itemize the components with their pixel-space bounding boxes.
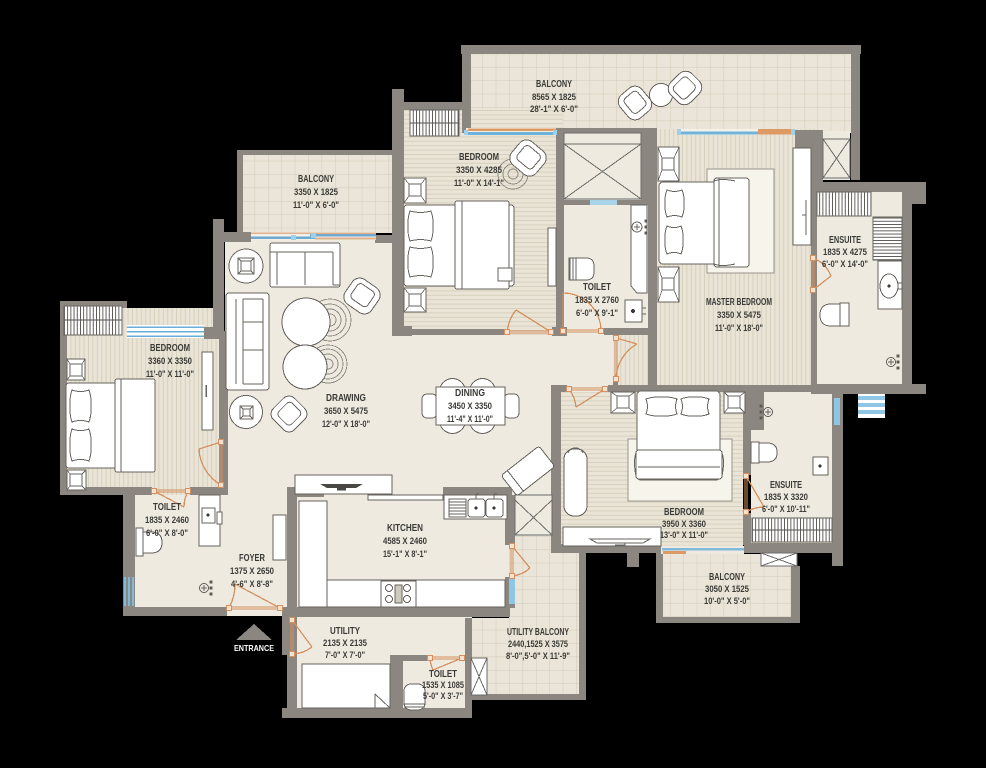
svg-text:ENSUITE: ENSUITE: [829, 235, 861, 246]
svg-text:3450 X 3350: 3450 X 3350: [448, 401, 492, 411]
svg-text:12'-0" X 18'-0": 12'-0" X 18'-0": [322, 419, 370, 429]
svg-text:6'-0" X 10'-11": 6'-0" X 10'-11": [762, 504, 810, 514]
svg-text:8565 X 1825: 8565 X 1825: [532, 92, 576, 102]
svg-text:1835 X 2460: 1835 X 2460: [145, 515, 189, 525]
svg-text:1375 X 2650: 1375 X 2650: [230, 566, 274, 576]
svg-text:11'-4" X 11'-0": 11'-4" X 11'-0": [447, 414, 493, 424]
svg-text:BEDROOM: BEDROOM: [664, 507, 704, 518]
svg-text:3650 X 5475: 3650 X 5475: [324, 406, 368, 416]
svg-text:TOILET: TOILET: [429, 669, 457, 680]
svg-text:2135 X 2135: 2135 X 2135: [323, 638, 367, 648]
svg-text:3360 X 3350: 3360 X 3350: [148, 356, 192, 366]
svg-text:TOILET: TOILET: [153, 502, 181, 513]
svg-text:UTILITY: UTILITY: [330, 626, 360, 637]
svg-text:MASTER BEDROOM: MASTER BEDROOM: [706, 297, 772, 308]
svg-text:BALCONY: BALCONY: [709, 572, 745, 583]
svg-text:13'-0" X 11'-0": 13'-0" X 11'-0": [660, 530, 708, 540]
svg-text:1835 X 2760: 1835 X 2760: [575, 295, 619, 305]
svg-text:TOILET: TOILET: [583, 282, 611, 293]
svg-text:11'-0" X 6'-0": 11'-0" X 6'-0": [293, 200, 339, 210]
svg-text:FOYER: FOYER: [239, 553, 266, 564]
svg-text:11'-0" X 14'-1": 11'-0" X 14'-1": [454, 178, 504, 188]
svg-text:BALCONY: BALCONY: [298, 174, 334, 185]
svg-text:6'-0" X 9'-1": 6'-0" X 9'-1": [576, 308, 618, 318]
svg-text:1835 X 3320: 1835 X 3320: [764, 492, 808, 502]
svg-text:15'-1" X 8'-1": 15'-1" X 8'-1": [383, 549, 427, 559]
svg-text:10'-0" X 5'-0": 10'-0" X 5'-0": [704, 596, 750, 606]
svg-text:6'-0" X 14'-0": 6'-0" X 14'-0": [822, 259, 868, 269]
svg-text:6'-0" X 8'-0": 6'-0" X 8'-0": [146, 528, 188, 538]
svg-text:3050 X 1525: 3050 X 1525: [705, 584, 749, 594]
svg-text:7'-0" X 7'-0": 7'-0" X 7'-0": [325, 650, 365, 660]
svg-text:2440,1525 X 3575: 2440,1525 X 3575: [508, 639, 568, 649]
svg-text:BALCONY: BALCONY: [536, 79, 572, 90]
svg-text:4585 X 2460: 4585 X 2460: [383, 536, 427, 546]
svg-text:KITCHEN: KITCHEN: [387, 523, 423, 534]
svg-text:ENSUITE: ENSUITE: [770, 480, 802, 491]
svg-text:3950 X 3360: 3950 X 3360: [662, 519, 706, 529]
svg-text:ENTRANCE: ENTRANCE: [234, 643, 274, 653]
svg-text:BEDROOM: BEDROOM: [459, 152, 499, 163]
svg-text:11'-0" X 18'-0": 11'-0" X 18'-0": [715, 323, 763, 333]
svg-text:5'-0" X 3'-7": 5'-0" X 3'-7": [423, 691, 463, 701]
svg-text:BEDROOM: BEDROOM: [150, 343, 190, 354]
svg-text:DRAWING: DRAWING: [326, 393, 366, 404]
svg-text:3350 X 5475: 3350 X 5475: [717, 310, 761, 320]
svg-text:28'-1" X 6'-0": 28'-1" X 6'-0": [530, 104, 578, 114]
svg-text:3350 X 1825: 3350 X 1825: [294, 187, 338, 197]
svg-text:DINING: DINING: [455, 388, 485, 399]
svg-text:UTILITY BALCONY: UTILITY BALCONY: [507, 627, 569, 638]
svg-text:1535 X 1085: 1535 X 1085: [422, 680, 464, 690]
svg-text:8'-0",5'-0" X 11'-9": 8'-0",5'-0" X 11'-9": [506, 651, 570, 661]
svg-text:1835 X 4275: 1835 X 4275: [823, 247, 867, 257]
svg-text:4'-6" X 8'-8": 4'-6" X 8'-8": [231, 579, 273, 589]
svg-text:11'-0" X 11'-0": 11'-0" X 11'-0": [146, 369, 194, 379]
svg-text:3350 X 4285: 3350 X 4285: [456, 165, 502, 175]
